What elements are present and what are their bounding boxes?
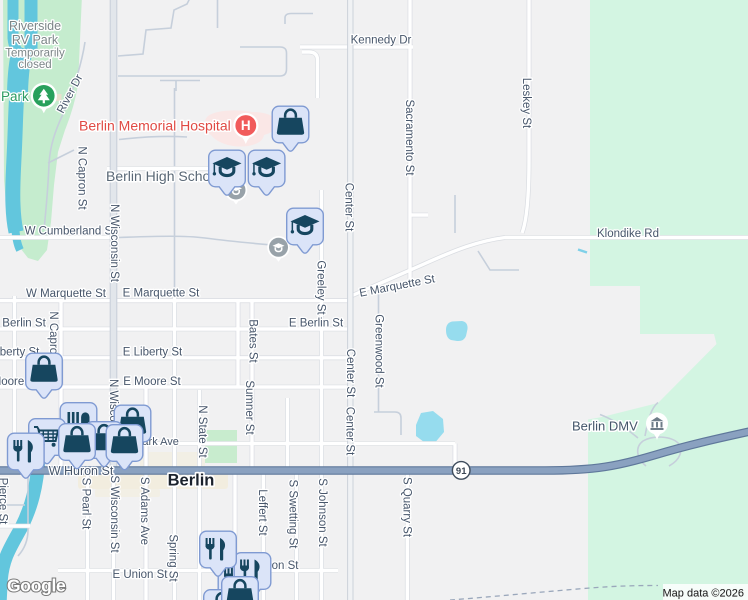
- svg-text:Berlin: Berlin: [168, 472, 215, 490]
- svg-text:Leffert St: Leffert St: [256, 489, 268, 536]
- svg-text:Berlin Memorial Hospital: Berlin Memorial Hospital: [79, 118, 231, 134]
- svg-text:W Cumberland St: W Cumberland St: [25, 226, 117, 238]
- svg-text:Berlin DMV: Berlin DMV: [572, 419, 638, 434]
- svg-text:Bates St: Bates St: [247, 319, 259, 363]
- svg-text:W Marquette St: W Marquette St: [26, 288, 107, 300]
- svg-text:S Adams Ave: S Adams Ave: [138, 477, 150, 545]
- svg-text:Greenwood St: Greenwood St: [373, 314, 385, 388]
- svg-text:Spring St: Spring St: [167, 534, 179, 582]
- svg-text:S Wisconsin St: S Wisconsin St: [108, 475, 120, 553]
- svg-text:E Berlin St: E Berlin St: [289, 318, 344, 330]
- svg-text:Pierce St: Pierce St: [0, 478, 9, 525]
- svg-text:Park: Park: [1, 89, 29, 104]
- svg-text:N Wisconsin St: N Wisconsin St: [108, 204, 120, 283]
- svg-text:S Swetting St: S Swetting St: [287, 479, 299, 549]
- svg-text:E Liberty St: E Liberty St: [123, 347, 183, 359]
- svg-text:S Pearl St: S Pearl St: [80, 478, 92, 531]
- svg-text:W Berlin St: W Berlin St: [0, 318, 47, 330]
- svg-text:Berlin High School: Berlin High School: [106, 168, 221, 184]
- svg-text:Center St: Center St: [343, 183, 355, 232]
- svg-text:RV Park: RV Park: [12, 33, 59, 47]
- svg-text:Kennedy Dr: Kennedy Dr: [351, 35, 412, 47]
- svg-text:Riverside: Riverside: [9, 19, 61, 33]
- svg-text:H: H: [241, 118, 251, 133]
- svg-text:Google: Google: [7, 576, 66, 596]
- svg-text:Sacramento St: Sacramento St: [403, 99, 415, 176]
- svg-text:E Moore St: E Moore St: [123, 376, 181, 388]
- svg-text:N State St: N State St: [196, 405, 208, 458]
- svg-text:S Johnson St: S Johnson St: [316, 478, 328, 547]
- svg-text:S Quarry St: S Quarry St: [401, 477, 413, 538]
- svg-text:N Capron St: N Capron St: [76, 146, 88, 210]
- svg-text:Center St: Center St: [344, 407, 356, 456]
- svg-text:E Marquette St: E Marquette St: [123, 288, 201, 300]
- svg-text:91: 91: [456, 466, 467, 477]
- svg-text:Greeley St: Greeley St: [315, 260, 327, 315]
- svg-text:Sumner St: Sumner St: [243, 380, 255, 435]
- svg-text:Map data ©2026: Map data ©2026: [663, 588, 745, 600]
- svg-text:Temporarily: Temporarily: [5, 48, 65, 60]
- svg-text:Leskey St: Leskey St: [520, 78, 532, 129]
- svg-text:closed: closed: [18, 59, 51, 71]
- svg-text:E Union St: E Union St: [113, 569, 169, 581]
- svg-text:Klondike Rd: Klondike Rd: [597, 228, 659, 240]
- svg-text:Center St: Center St: [344, 349, 356, 398]
